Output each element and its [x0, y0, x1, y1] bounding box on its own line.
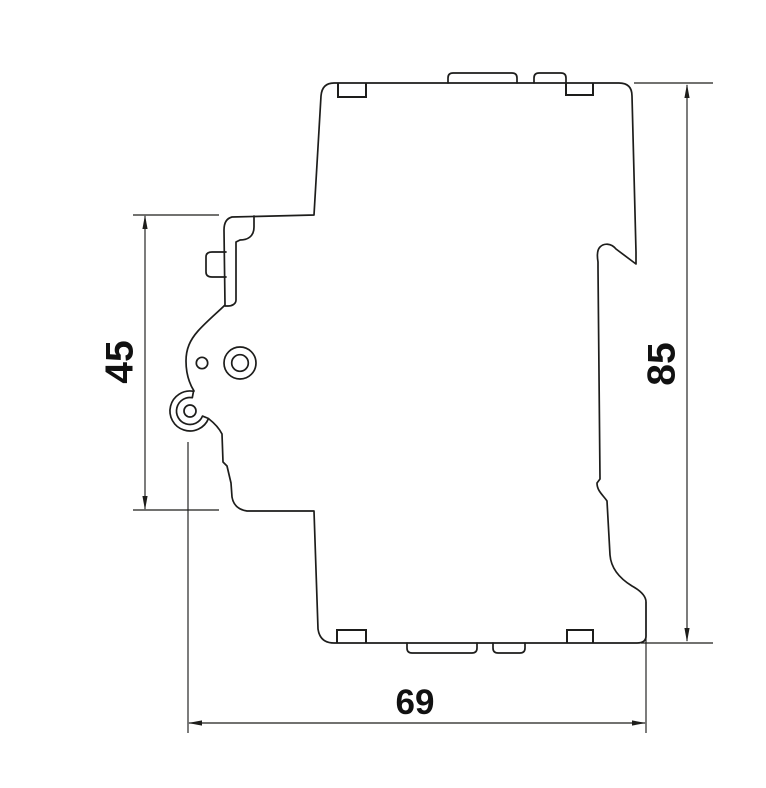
arrowhead-down: [142, 496, 147, 510]
terminal-clamp-lug: [206, 252, 226, 277]
pivot-inner-circle: [232, 355, 249, 372]
dimension-value-45: 45: [99, 340, 142, 383]
dimension-front-height: 45: [99, 215, 219, 510]
dimension-overall-depth: 69: [188, 442, 646, 733]
clip-pivot-hole: [184, 405, 196, 417]
arrowhead-left: [188, 720, 202, 725]
breaker-body: [170, 73, 646, 653]
top-tab-small: [534, 73, 566, 83]
dimension-value-85: 85: [641, 342, 684, 385]
dimension-value-69: 69: [396, 683, 435, 722]
circuit-breaker-side-view-drawing: 45 85 69: [0, 0, 766, 788]
bottom-notch-left: [337, 630, 366, 643]
top-notch-right: [566, 83, 593, 95]
arrowhead-up: [684, 84, 689, 98]
arrowhead-up: [142, 215, 147, 229]
top-notch-left: [338, 83, 366, 97]
bottom-tab-small: [493, 643, 525, 653]
terminal-recess-line: [225, 216, 254, 306]
arrowhead-down: [684, 628, 689, 642]
arrowhead-right: [632, 720, 646, 725]
dimension-overall-height: 85: [634, 83, 713, 643]
din-rail-clip: [170, 391, 209, 431]
pivot-outer-circle: [224, 347, 256, 379]
technical-drawing-canvas: 45 85 69: [0, 0, 766, 788]
small-rivet-circle: [196, 357, 207, 368]
top-tab-large: [448, 73, 517, 83]
body-outline: [186, 83, 646, 643]
bottom-tab-large: [407, 643, 477, 653]
bottom-notch-right: [567, 630, 593, 643]
